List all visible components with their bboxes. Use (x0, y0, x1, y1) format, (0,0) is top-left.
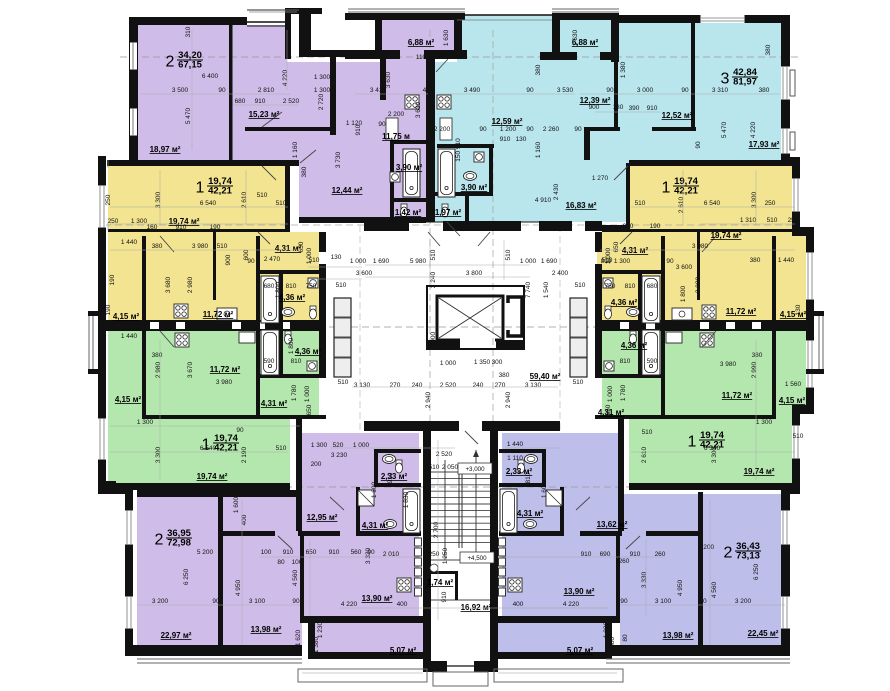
svg-text:270: 270 (390, 382, 401, 389)
svg-text:1 560: 1 560 (785, 381, 802, 388)
svg-text:270: 270 (495, 382, 506, 389)
svg-text:4 950: 4 950 (677, 579, 684, 596)
svg-text:3 200: 3 200 (735, 598, 752, 605)
svg-text:3 200: 3 200 (152, 598, 169, 605)
svg-text:90: 90 (526, 126, 534, 133)
svg-text:510: 510 (430, 249, 437, 260)
svg-text:2 700: 2 700 (433, 521, 440, 538)
svg-text:5 470: 5 470 (185, 107, 192, 124)
svg-text:1 310: 1 310 (740, 217, 757, 224)
svg-text:1 780: 1 780 (291, 384, 298, 401)
svg-text:380: 380 (301, 166, 308, 177)
svg-text:3 300: 3 300 (155, 191, 162, 208)
svg-text:250: 250 (105, 194, 112, 205)
svg-text:4 220: 4 220 (282, 69, 289, 86)
svg-text:1 380: 1 380 (609, 636, 616, 653)
svg-text:300: 300 (492, 359, 503, 366)
svg-text:13,98 м²: 13,98 м² (663, 631, 694, 640)
svg-text:5,07 м²: 5,07 м² (390, 646, 417, 655)
svg-text:13,62 м²: 13,62 м² (597, 520, 628, 529)
svg-text:4 220: 4 220 (750, 121, 757, 138)
svg-text:4,36 м²: 4,36 м² (295, 347, 322, 356)
svg-text:13,98 м²: 13,98 м² (251, 625, 282, 634)
svg-text:100: 100 (292, 559, 303, 566)
svg-text:1 200: 1 200 (500, 126, 517, 133)
svg-text:1 600: 1 600 (233, 496, 240, 513)
svg-text:650: 650 (298, 241, 305, 252)
svg-text:380: 380 (759, 87, 770, 94)
svg-text:2: 2 (724, 545, 733, 562)
svg-text:560: 560 (351, 549, 362, 556)
svg-text:1 800: 1 800 (288, 337, 295, 354)
svg-text:380: 380 (499, 372, 510, 379)
svg-text:59,40 м²: 59,40 м² (530, 372, 561, 381)
svg-text:510: 510 (793, 433, 804, 440)
svg-text:680: 680 (264, 283, 275, 290)
svg-text:1 380: 1 380 (313, 636, 320, 653)
svg-text:380: 380 (765, 44, 772, 55)
svg-text:510: 510 (767, 217, 778, 224)
svg-text:150 910: 150 910 (455, 138, 462, 162)
svg-text:2 990: 2 990 (751, 361, 758, 378)
svg-text:2 980: 2 980 (695, 276, 702, 293)
svg-text:380: 380 (152, 243, 163, 250)
svg-text:6 540: 6 540 (200, 445, 217, 452)
svg-text:600: 600 (243, 249, 250, 260)
svg-text:1 440: 1 440 (121, 239, 138, 246)
svg-text:240: 240 (473, 382, 484, 389)
svg-text:81,97: 81,97 (733, 77, 757, 88)
svg-text:4 560: 4 560 (292, 569, 299, 586)
svg-text:1 000: 1 000 (430, 331, 437, 348)
svg-text:11,72 м²: 11,72 м² (203, 310, 234, 319)
svg-text:2 470: 2 470 (264, 256, 281, 263)
svg-text:1 000: 1 000 (306, 247, 313, 264)
svg-text:650: 650 (306, 549, 317, 556)
svg-text:510: 510 (505, 249, 512, 260)
svg-text:750: 750 (605, 283, 616, 290)
svg-text:90: 90 (620, 598, 628, 605)
svg-text:6 540: 6 540 (200, 200, 217, 207)
svg-text:1,97 м²: 1,97 м² (435, 208, 462, 217)
svg-text:22,45 м²: 22,45 м² (748, 629, 779, 638)
svg-text:42,21: 42,21 (674, 186, 698, 197)
svg-text:240: 240 (412, 382, 423, 389)
svg-text:1 690: 1 690 (373, 258, 390, 265)
svg-text:15,23 м²: 15,23 м² (249, 110, 280, 119)
svg-text:6 540: 6 540 (704, 200, 721, 207)
svg-text:1 620: 1 620 (295, 629, 302, 646)
svg-text:1 300: 1 300 (756, 419, 773, 426)
svg-text:680: 680 (235, 98, 246, 105)
svg-text:1 300: 1 300 (614, 258, 631, 265)
svg-text:590: 590 (647, 358, 658, 365)
svg-text:1 600: 1 600 (541, 481, 548, 498)
svg-text:3 310: 3 310 (712, 87, 729, 94)
svg-text:260: 260 (619, 558, 630, 565)
svg-text:73,13: 73,13 (736, 551, 760, 562)
svg-text:2 980: 2 980 (187, 276, 194, 293)
svg-text:2 610: 2 610 (241, 191, 248, 208)
svg-text:6 250: 6 250 (183, 568, 190, 585)
svg-text:3 670: 3 670 (187, 361, 194, 378)
svg-text:4,31 м²: 4,31 м² (517, 509, 544, 518)
svg-text:1 300: 1 300 (137, 419, 154, 426)
svg-text:80: 80 (622, 634, 629, 642)
svg-text:11,75 м: 11,75 м (382, 132, 410, 141)
svg-text:910: 910 (329, 549, 340, 556)
svg-text:590: 590 (264, 358, 275, 365)
svg-text:2 610: 2 610 (678, 196, 685, 213)
svg-text:11,72 м²: 11,72 м² (210, 365, 241, 374)
svg-text:1 830: 1 830 (403, 491, 410, 508)
svg-text:90: 90 (606, 87, 614, 94)
svg-text:110: 110 (416, 54, 427, 61)
svg-text:11,72 м²: 11,72 м² (722, 391, 753, 400)
svg-text:380: 380 (750, 257, 761, 264)
svg-text:910: 910 (355, 124, 362, 135)
svg-text:910: 910 (387, 472, 394, 483)
svg-text:4 220: 4 220 (341, 601, 358, 608)
svg-text:160: 160 (589, 223, 600, 230)
svg-text:380: 380 (752, 352, 763, 359)
svg-text:4,31 м²: 4,31 м² (622, 246, 649, 255)
svg-text:2 980: 2 980 (155, 361, 162, 378)
svg-text:510: 510 (635, 200, 646, 207)
svg-text:1 300: 1 300 (311, 442, 328, 449)
svg-text:1 160: 1 160 (292, 141, 299, 158)
svg-text:510: 510 (338, 379, 349, 386)
svg-text:90: 90 (695, 141, 702, 149)
svg-text:1 800: 1 800 (680, 285, 687, 302)
svg-text:1 440: 1 440 (507, 441, 524, 448)
svg-text:1 440: 1 440 (778, 257, 795, 264)
svg-text:2 720: 2 720 (318, 93, 325, 110)
svg-text:910: 910 (441, 591, 448, 602)
svg-text:2 240: 2 240 (430, 271, 437, 288)
svg-text:4 220: 4 220 (563, 601, 580, 608)
svg-text:390: 390 (629, 105, 640, 112)
svg-text:190: 190 (650, 223, 661, 230)
svg-text:+3,000: +3,000 (465, 466, 485, 473)
svg-text:7 740: 7 740 (525, 281, 532, 298)
svg-text:2 520: 2 520 (440, 382, 457, 389)
svg-text:1 000: 1 000 (350, 258, 367, 265)
svg-text:4,31 м²: 4,31 м² (362, 521, 389, 530)
svg-text:3 490: 3 490 (464, 87, 481, 94)
svg-text:380: 380 (535, 64, 542, 75)
svg-text:130: 130 (516, 136, 527, 143)
svg-text:510: 510 (276, 200, 287, 207)
svg-text:130: 130 (613, 104, 624, 111)
svg-text:1 160: 1 160 (535, 141, 542, 158)
svg-text:250: 250 (765, 200, 776, 207)
svg-text:4,36 м²: 4,36 м² (279, 293, 306, 302)
svg-text:510: 510 (276, 445, 287, 452)
svg-text:910: 910 (283, 549, 294, 556)
svg-text:510: 510 (642, 429, 653, 436)
svg-text:2 260: 2 260 (543, 126, 560, 133)
svg-text:90: 90 (574, 126, 582, 133)
svg-text:1 540: 1 540 (543, 281, 550, 298)
svg-text:650: 650 (613, 241, 620, 252)
svg-text:810: 810 (625, 283, 636, 290)
svg-text:3 300: 3 300 (155, 446, 162, 463)
svg-text:250: 250 (788, 217, 799, 224)
svg-text:5 470: 5 470 (721, 121, 728, 138)
svg-text:380: 380 (436, 54, 447, 61)
svg-text:1 440: 1 440 (121, 333, 138, 340)
svg-text:18,97 м²: 18,97 м² (150, 145, 181, 154)
svg-text:90: 90 (378, 121, 386, 128)
svg-text:4,15 м²: 4,15 м² (115, 395, 142, 404)
svg-text:1 230: 1 230 (603, 621, 610, 638)
svg-text:2: 2 (155, 532, 164, 549)
svg-text:6,88 м²: 6,88 м² (408, 38, 435, 47)
svg-text:5 200: 5 200 (698, 544, 715, 551)
svg-text:4 560: 4 560 (711, 581, 718, 598)
svg-text:1,42 м²: 1,42 м² (395, 208, 422, 217)
svg-text:3 410: 3 410 (370, 87, 387, 94)
svg-text:12,44 м²: 12,44 м² (332, 186, 363, 195)
svg-text:100: 100 (261, 549, 272, 556)
svg-text:3 000: 3 000 (637, 87, 654, 94)
svg-text:1 000: 1 000 (440, 360, 457, 367)
svg-text:200: 200 (311, 461, 322, 468)
svg-text:11,72 м²: 11,72 м² (726, 307, 757, 316)
svg-text:2 810: 2 810 (258, 87, 275, 94)
svg-text:510: 510 (336, 282, 347, 289)
svg-text:910: 910 (500, 136, 511, 143)
svg-text:680: 680 (647, 283, 658, 290)
svg-text:3,90 м²: 3,90 м² (461, 183, 488, 192)
svg-text:1: 1 (196, 180, 205, 197)
svg-text:90: 90 (479, 126, 487, 133)
svg-text:42,21: 42,21 (208, 186, 232, 197)
svg-text:900: 900 (589, 104, 600, 111)
svg-text:4,15 м²: 4,15 м² (779, 396, 806, 405)
svg-text:19,74 м²: 19,74 м² (197, 472, 228, 481)
svg-text:3 330: 3 330 (641, 571, 648, 588)
svg-text:4,36 м²: 4,36 м² (611, 298, 638, 307)
svg-text:90: 90 (526, 87, 534, 94)
svg-text:510: 510 (575, 282, 586, 289)
svg-text:4,31 м²: 4,31 м² (261, 399, 288, 408)
svg-text:160: 160 (147, 224, 158, 231)
svg-text:3 600: 3 600 (356, 270, 373, 277)
svg-text:5 980: 5 980 (410, 258, 427, 265)
svg-text:5 200: 5 200 (197, 549, 214, 556)
svg-text:1 000: 1 000 (607, 385, 614, 402)
svg-text:12,52 м²: 12,52 м² (662, 111, 693, 120)
svg-text:4,36 м²: 4,36 м² (621, 341, 648, 350)
svg-text:1 000: 1 000 (520, 258, 537, 265)
svg-text:3 130: 3 130 (354, 382, 371, 389)
svg-text:1 630: 1 630 (443, 29, 450, 46)
svg-text:4,15 м²: 4,15 м² (113, 312, 140, 321)
svg-text:3 130: 3 130 (525, 382, 542, 389)
svg-text:3 600: 3 600 (676, 264, 693, 271)
svg-text:1 780: 1 780 (620, 384, 627, 401)
svg-text:910: 910 (623, 223, 634, 230)
svg-text:750: 750 (306, 283, 317, 290)
svg-text:12,59 м²: 12,59 м² (492, 117, 523, 126)
svg-text:2 430: 2 430 (553, 183, 560, 200)
svg-text:16,92 м²: 16,92 м² (461, 603, 492, 612)
svg-text:2 940: 2 940 (505, 391, 512, 408)
svg-text:3 980: 3 980 (720, 361, 737, 368)
svg-text:+4,500: +4,500 (467, 555, 487, 562)
svg-text:910: 910 (647, 105, 658, 112)
svg-text:1 000: 1 000 (304, 385, 311, 402)
svg-text:650: 650 (306, 404, 313, 415)
svg-text:910: 910 (176, 224, 187, 231)
svg-text:900: 900 (225, 254, 232, 265)
svg-text:13,90 м²: 13,90 м² (564, 587, 595, 596)
svg-text:67,15: 67,15 (178, 60, 202, 71)
svg-text:13,90 м²: 13,90 м² (362, 594, 393, 603)
svg-text:3 100: 3 100 (249, 598, 266, 605)
svg-text:4 950: 4 950 (235, 579, 242, 596)
svg-text:17,93 м²: 17,93 м² (749, 140, 780, 149)
svg-text:3,90 м²: 3,90 м² (396, 163, 423, 172)
svg-text:1 300: 1 300 (314, 74, 331, 81)
svg-text:90: 90 (292, 598, 300, 605)
svg-text:2 940: 2 940 (425, 391, 432, 408)
svg-text:2 200: 2 200 (388, 111, 405, 118)
svg-text:72,98: 72,98 (167, 538, 191, 549)
svg-text:190: 190 (105, 304, 112, 315)
svg-text:1 380: 1 380 (620, 61, 627, 78)
svg-text:190: 190 (109, 274, 116, 285)
svg-text:400: 400 (423, 87, 434, 94)
svg-text:380: 380 (152, 352, 163, 359)
svg-text:6 250: 6 250 (753, 563, 760, 580)
svg-text:3 330: 3 330 (365, 547, 372, 564)
svg-text:190: 190 (210, 224, 221, 231)
svg-text:3 980: 3 980 (692, 243, 709, 250)
svg-text:3 680: 3 680 (165, 276, 172, 293)
svg-text:2 520: 2 520 (283, 98, 300, 105)
svg-text:810: 810 (286, 283, 297, 290)
svg-text:22,97 м²: 22,97 м² (161, 631, 192, 640)
svg-text:90: 90 (236, 427, 244, 434)
svg-text:310: 310 (185, 26, 192, 37)
svg-text:2 610: 2 610 (641, 446, 648, 463)
svg-text:400: 400 (397, 601, 408, 608)
svg-text:2 200: 2 200 (434, 126, 451, 133)
svg-text:5,07 м²: 5,07 м² (567, 646, 594, 655)
svg-text:400: 400 (513, 601, 524, 608)
svg-text:3 730: 3 730 (335, 151, 342, 168)
svg-text:90: 90 (699, 598, 707, 605)
svg-text:4,15 м²: 4,15 м² (780, 310, 807, 319)
svg-text:2 050: 2 050 (442, 464, 459, 471)
svg-text:4 910: 4 910 (535, 197, 552, 204)
svg-text:3 500: 3 500 (172, 87, 189, 94)
svg-text:1 110: 1 110 (507, 455, 523, 462)
svg-text:3 300: 3 300 (751, 191, 758, 208)
svg-text:3 230: 3 230 (331, 452, 348, 459)
svg-text:6 400: 6 400 (202, 73, 219, 80)
svg-text:810: 810 (620, 358, 631, 365)
svg-text:3 630: 3 630 (415, 101, 422, 118)
svg-text:510: 510 (257, 192, 268, 199)
svg-text:3: 3 (721, 71, 730, 88)
svg-text:1 250: 1 250 (442, 547, 449, 564)
svg-text:2 520: 2 520 (436, 451, 453, 458)
svg-text:19,74 м²: 19,74 м² (744, 467, 775, 476)
svg-text:810: 810 (525, 472, 532, 483)
svg-text:3 530: 3 530 (557, 87, 574, 94)
svg-text:80: 80 (277, 559, 285, 566)
svg-text:1 230: 1 230 (317, 621, 324, 638)
svg-text:810: 810 (291, 358, 302, 365)
svg-text:3 630: 3 630 (385, 71, 392, 88)
svg-text:1: 1 (662, 180, 671, 197)
svg-text:90: 90 (218, 87, 226, 94)
svg-text:3 980: 3 980 (216, 379, 233, 386)
svg-text:1 350: 1 350 (474, 359, 491, 366)
svg-text:12,95 м²: 12,95 м² (307, 513, 338, 522)
svg-text:1 270: 1 270 (592, 175, 609, 182)
svg-text:2 190: 2 190 (241, 446, 248, 463)
svg-text:19,74 м²: 19,74 м² (711, 231, 742, 240)
svg-text:90: 90 (666, 258, 674, 265)
svg-text:3 300: 3 300 (711, 446, 718, 463)
svg-text:16,83 м²: 16,83 м² (566, 201, 597, 210)
svg-text:3 800: 3 800 (466, 270, 483, 277)
svg-text:910: 910 (255, 98, 266, 105)
svg-text:1 800: 1 800 (275, 281, 282, 298)
svg-text:3 100: 3 100 (655, 598, 672, 605)
svg-text:1,74 м²: 1,74 м² (427, 578, 454, 587)
svg-text:2 400: 2 400 (552, 270, 569, 277)
svg-text:130: 130 (795, 304, 802, 315)
svg-text:130: 130 (331, 254, 342, 261)
svg-text:510: 510 (217, 243, 228, 250)
svg-text:1 600: 1 600 (371, 481, 378, 498)
svg-text:2: 2 (166, 54, 175, 71)
svg-text:1 300: 1 300 (314, 87, 331, 94)
svg-text:3 980: 3 980 (192, 243, 209, 250)
svg-text:510: 510 (573, 379, 584, 386)
svg-text:90: 90 (212, 598, 220, 605)
svg-text:1 630: 1 630 (572, 29, 579, 46)
svg-text:1: 1 (688, 434, 697, 451)
svg-text:2,33 м²: 2,33 м² (381, 472, 408, 481)
svg-text:650: 650 (605, 404, 612, 415)
svg-text:90: 90 (681, 87, 689, 94)
svg-text:1 690: 1 690 (541, 258, 558, 265)
